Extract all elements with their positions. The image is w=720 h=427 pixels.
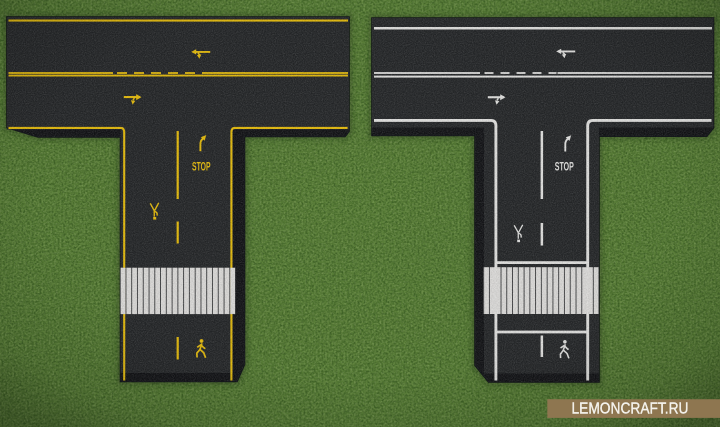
- svg-text:LEMONCRAFT.RU: LEMONCRAFT.RU: [572, 400, 689, 417]
